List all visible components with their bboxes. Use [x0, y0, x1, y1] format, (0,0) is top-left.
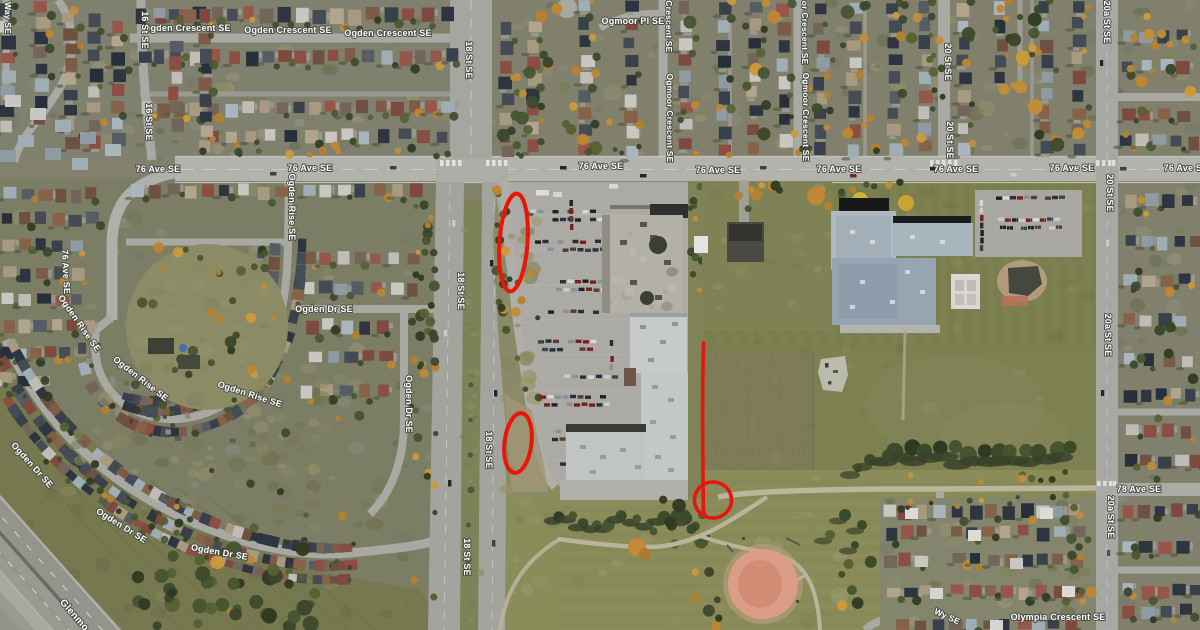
svg-text:20a St SE: 20a St SE	[1102, 1, 1112, 44]
svg-text:18 St SE: 18 St SE	[462, 538, 472, 576]
svg-text:76 Ave SE: 76 Ave SE	[696, 165, 741, 175]
svg-text:16 St SE: 16 St SE	[144, 103, 154, 141]
svg-text:Olympia Crescent SE: Olympia Crescent SE	[1011, 612, 1106, 622]
svg-text:78 Ave SE: 78 Ave SE	[1117, 484, 1162, 494]
svg-text:Ogmoor Crescent SE: Ogmoor Crescent SE	[664, 0, 674, 53]
svg-text:20 St SE: 20 St SE	[945, 121, 955, 159]
svg-text:18 St SE: 18 St SE	[484, 431, 494, 469]
svg-text:16 St SE: 16 St SE	[140, 11, 150, 49]
svg-text:Ogmoor Crescent SE: Ogmoor Crescent SE	[665, 73, 675, 162]
svg-text:76 Ave SE: 76 Ave SE	[934, 164, 979, 174]
svg-text:Ogmoor Pl SE: Ogmoor Pl SE	[602, 16, 665, 26]
svg-text:Ogmoor Crescent SE: Ogmoor Crescent SE	[801, 72, 811, 161]
svg-text:76 Ave SE: 76 Ave SE	[1164, 163, 1200, 173]
svg-text:76 Ave SE: 76 Ave SE	[1050, 163, 1095, 173]
svg-text:20 St SE: 20 St SE	[943, 43, 953, 81]
svg-text:76 Ave SE: 76 Ave SE	[136, 164, 181, 174]
svg-text:Ogden Crescent SE: Ogden Crescent SE	[143, 23, 230, 33]
svg-text:20a St SE: 20a St SE	[1103, 314, 1113, 357]
svg-text:20a St SE: 20a St SE	[1106, 496, 1116, 539]
svg-text:Ogden Rise SE: Ogden Rise SE	[287, 173, 297, 240]
svg-text:18 St SE: 18 St SE	[456, 272, 466, 310]
svg-text:76 Ave SE: 76 Ave SE	[817, 164, 862, 174]
svg-text:Ogden Dr SE: Ogden Dr SE	[295, 304, 353, 314]
svg-text:20 St SE: 20 St SE	[1105, 174, 1115, 212]
svg-text:Ogmoor Crescent SE: Ogmoor Crescent SE	[800, 0, 810, 65]
svg-text:Way SE: Way SE	[3, 2, 13, 34]
svg-text:18 St SE: 18 St SE	[464, 41, 474, 79]
svg-text:76 Ave SE: 76 Ave SE	[579, 161, 624, 171]
svg-text:Ogden Crescent SE: Ogden Crescent SE	[244, 25, 331, 35]
svg-text:Ogden Crescent SE: Ogden Crescent SE	[344, 28, 431, 38]
svg-text:Ogden Dr SE: Ogden Dr SE	[404, 375, 414, 433]
svg-text:76 Ave SE: 76 Ave SE	[288, 163, 333, 173]
